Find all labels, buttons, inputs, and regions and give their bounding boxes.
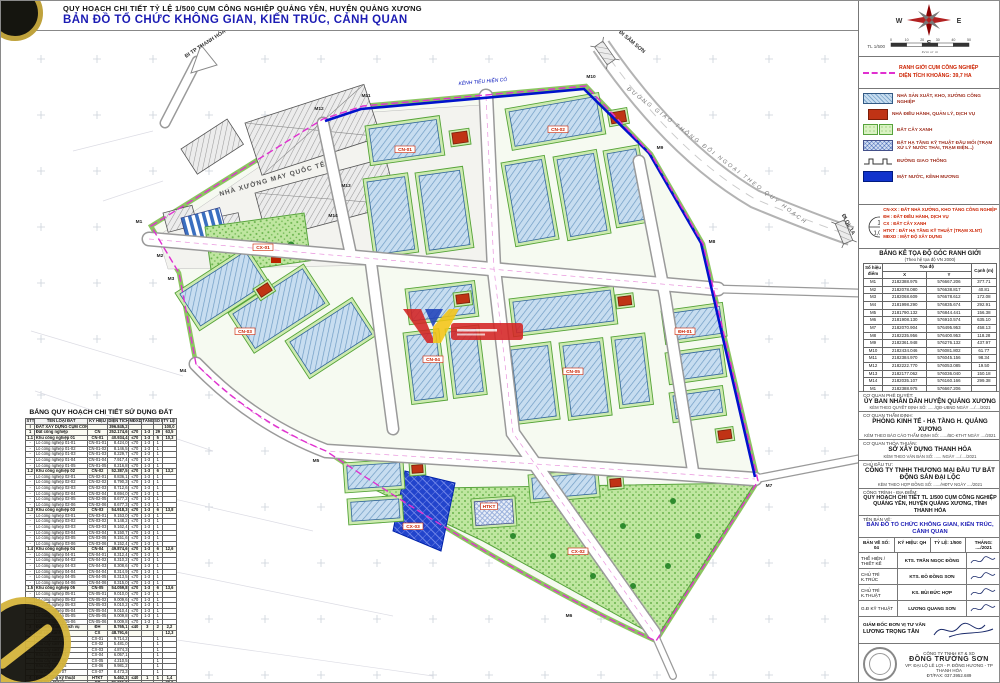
svg-text:20: 20: [920, 38, 924, 42]
lot-code-legend-line: ĐH : ĐẤT ĐIỀU HÀNH, DỊCH VỤ: [883, 214, 997, 221]
drawing-name-section: TÊN BẢN VẼ: BẢN ĐỒ TỔ CHỨC KHÔNG GIAN, K…: [859, 516, 1000, 538]
svg-text:CN-02: CN-02: [551, 127, 565, 133]
legend-item: NHÀ ĐIỀU HÀNH, QUẢN LÝ, DỊCH VỤ: [863, 109, 997, 120]
drawing-meta-row: BẢN VẼ SỐ: 04 KÝ HIỆU: QH TỶ LỆ: 1/500 T…: [859, 538, 1000, 553]
boundary-point-label: M5: [313, 458, 320, 464]
planning-drawing-sheet: QUY HOẠCH CHI TIẾT TỶ LỆ 1/500 CỤM CÔNG …: [0, 0, 1000, 683]
svg-text:Đơn vị: m: Đơn vị: m: [922, 51, 938, 54]
svg-text:W: W: [896, 18, 903, 25]
coordinate-table: Số hiệu điểmTọa độCạnh (m) XY M12182388.…: [863, 263, 997, 393]
lot-tag-label: HTKT: [481, 503, 498, 510]
coordinate-row: M52181790.132576844.441156.38: [864, 309, 997, 317]
project-section: CÔNG TRÌNH - ĐỊA ĐIỂM: QUY HOẠCH CHI TIẾ…: [859, 489, 1000, 516]
legend-item-label: ĐƯỜNG GIAO THÔNG: [897, 158, 947, 163]
consultant-signature: [929, 617, 999, 643]
signature-row: CHỦ TRÌ K.TRÚCKTS. ĐỖ ĐỒNG SƠN: [859, 569, 1000, 585]
sw-dh-swatch: [868, 109, 888, 120]
boundary-legend-box: RANH GIỚI CỤM CÔNG NGHIỆP DIỆN TÍCH KHOẢ…: [859, 57, 1000, 89]
boundary-point-label: M11: [361, 93, 370, 99]
coordinate-row: M82182235.956576400.953118.28: [864, 332, 997, 340]
coordinate-row: M12182388.975576667.206377.71: [864, 279, 997, 287]
svg-text:M6: M6: [566, 613, 573, 619]
sw-mn-swatch: [863, 171, 893, 182]
boundary-point-label: M6: [566, 613, 573, 619]
legend-item-label: ĐẤT HẠ TẦNG KỸ THUẬT ĐẦU MỐI (TRẠM XỬ LÝ…: [897, 140, 997, 151]
svg-text:ĐH-01: ĐH-01: [678, 329, 692, 335]
consultant-row: GIÁM ĐỐC ĐƠN VỊ TƯ VẤN LƯƠNG TRỌNG TÂN: [859, 617, 1000, 644]
company-stamp-icon: [863, 647, 897, 681]
svg-text:CN-01: CN-01: [398, 147, 412, 153]
lot-code-legend-line: HTKT : ĐẤT HẠ TẦNG KỸ THUẬT (TRẠM XLNT): [883, 228, 997, 235]
boundary-dash-swatch: [863, 72, 895, 74]
approval-section: CƠ QUAN PHÊ DUYỆT:ỦY BAN NHÂN DÂN HUYỆN …: [859, 392, 1000, 412]
htkt-lot: [471, 496, 517, 529]
svg-text:50: 50: [967, 38, 971, 42]
approval-section: CHỦ ĐẦU TƯ:CÔNG TY TNHH THƯƠNG MẠI ĐẦU T…: [859, 461, 1000, 489]
coordinate-row: M32182068.609576678.612172.08: [864, 294, 997, 302]
svg-text:M4: M4: [180, 368, 187, 374]
legend-item: MẶT NƯỚC, KÊNH MƯƠNG: [863, 171, 997, 182]
lot-tag-label: CN-03: [235, 328, 255, 335]
coordinate-row: M72182070.904576495.953458.13: [864, 324, 997, 332]
boundary-legend-line2: DIỆN TÍCH KHOẢNG: 39,7 HA: [899, 73, 978, 80]
legend-box: NHÀ SẢN XUẤT, KHO, XƯỞNG CÔNG NGHIỆPNHÀ …: [859, 89, 1000, 205]
svg-text:M2: M2: [157, 253, 164, 259]
coordinate-row: M22182078.080576638.81740.81: [864, 286, 997, 294]
sheet-title-main: BẢN ĐỒ TỔ CHỨC KHÔNG GIAN, KIẾN TRÚC, CẢ…: [63, 14, 858, 26]
coordinate-row: M142182035.107576160.166299.38: [864, 378, 997, 386]
boundary-point-label: M9: [657, 145, 664, 151]
svg-text:M7: M7: [766, 483, 773, 489]
lot-code-legend-line: CX : ĐẤT CÂY XANH: [883, 221, 997, 228]
lot-tag-label: ĐH-01: [675, 328, 695, 335]
svg-text:M14: M14: [328, 213, 338, 219]
svg-text:CX-02: CX-02: [571, 549, 585, 555]
approval-section: CƠ QUAN THẨM ĐỊNH:PHÒNG KINH TẾ - HẠ TẦN…: [859, 412, 1000, 440]
coordinate-row: M112182384.970576045.15698.34: [864, 355, 997, 363]
lot-symbol-legend-box: 1 1,05 SỐ Ô ĐẤT DT (HA) CN-XX : ĐẤT NHÀ …: [859, 205, 1000, 249]
boundary-point-label: M8: [709, 239, 716, 245]
boundary-point-label: M14: [328, 213, 338, 219]
boundary-point-label: M13: [341, 183, 351, 189]
signature-row: THỂ HIỆN / THIẾT KẾKTS. TRẦN NGỌC ĐỒNG: [859, 553, 1000, 569]
boundary-point-label: M7: [766, 483, 773, 489]
legend-item: ĐƯỜNG GIAO THÔNG: [863, 155, 997, 166]
svg-text:0: 0: [890, 38, 892, 42]
signature-table: THỂ HIỆN / THIẾT KẾKTS. TRẦN NGỌC ĐỒNGCH…: [859, 553, 1000, 617]
boundary-point-label: M12: [314, 106, 324, 112]
svg-text:CX-01: CX-01: [256, 245, 270, 251]
coordinate-table-subtitle: (Theo hệ tọa độ VN 2000): [863, 257, 997, 262]
svg-text:30: 30: [936, 38, 940, 42]
sheet-title-small: QUY HOẠCH CHI TIẾT TỶ LỆ 1/500 CỤM CÔNG …: [63, 4, 858, 13]
svg-text:M5: M5: [313, 458, 320, 464]
approval-section: CƠ QUAN THỎA THUẬN:SỞ XÂY DỰNG THANH HÓA…: [859, 440, 1000, 460]
right-panel: W E S TL 1/500 01020304050 Đơn vị: m RAN…: [858, 1, 1000, 683]
sw-cn-swatch: [863, 93, 893, 104]
lot-code-legend-line: MĐXD : MẬT ĐỘ XÂY DỰNG: [883, 234, 997, 241]
road-section-icon: [863, 155, 893, 166]
coordinate-row: M62181908.130576910.574635.10: [864, 317, 997, 325]
svg-text:CN-05: CN-05: [566, 369, 580, 375]
svg-text:CX-03: CX-03: [406, 524, 420, 530]
coordinate-row: M122182222.770576053.08519.50: [864, 362, 997, 370]
boundary-point-label: M4: [180, 368, 187, 374]
svg-text:CN-03: CN-03: [238, 329, 252, 335]
svg-text:M9: M9: [657, 145, 664, 151]
coordinate-row: M42181998.290576835.674292.91: [864, 302, 997, 310]
boundary-point-label: M3: [168, 276, 175, 282]
boundary-point-label: M1: [136, 219, 143, 225]
boundary-point-label: M10: [586, 74, 596, 80]
signature-row: G.Đ KỸ THUẬTLƯƠNG QUANG SƠN: [859, 601, 1000, 617]
legend-item-label: NHÀ SẢN XUẤT, KHO, XƯỞNG CÔNG NGHIỆP: [897, 93, 997, 104]
lot-tag-label: CN-02: [548, 126, 568, 133]
lot-tag-label: CX-02: [568, 548, 588, 555]
scale-bar: TL 1/500 01020304050 Đơn vị: m: [867, 38, 971, 53]
svg-text:M13: M13: [341, 183, 351, 189]
legend-item-label: NHÀ ĐIỀU HÀNH, QUẢN LÝ, DỊCH VỤ: [892, 111, 975, 116]
green-swatch: [863, 124, 893, 135]
compass-rose-icon: W E S TL 1/500 01020304050 Đơn vị: m: [863, 3, 996, 53]
legend-item: NHÀ SẢN XUẤT, KHO, XƯỞNG CÔNG NGHIỆP: [863, 93, 997, 104]
svg-text:M8: M8: [709, 239, 716, 245]
legend-item-label: ĐẤT CÂY XANH: [897, 127, 932, 132]
lot-code-legend-line: CN-XX : ĐẤT NHÀ XƯỞNG, KHO TÀNG CÔNG NGH…: [883, 207, 997, 214]
boundary-legend-line1: RANH GIỚI CỤM CÔNG NGHIỆP: [899, 65, 978, 72]
sheet-header: QUY HOẠCH CHI TIẾT TỶ LỆ 1/500 CỤM CÔNG …: [13, 1, 858, 31]
title-block: CƠ QUAN PHÊ DUYỆT:ỦY BAN NHÂN DÂN HUYỆN …: [859, 392, 1000, 683]
sw-htkt-swatch: [863, 140, 893, 151]
lot-tag-label: CN-01: [395, 146, 415, 153]
coordinate-row: M92182361.948576276.132437.97: [864, 340, 997, 348]
svg-text:1: 1: [877, 221, 880, 227]
svg-text:CN-04: CN-04: [426, 357, 440, 363]
coordinate-table-box: BẢNG KÊ TỌA ĐỘ GÓC RANH GIỚI (Theo hệ tọ…: [859, 249, 1000, 392]
legend-item-label: MẶT NƯỚC, KÊNH MƯƠNG: [897, 174, 959, 179]
lot-tag-label: CX-01: [253, 244, 273, 251]
svg-text:M12: M12: [314, 106, 324, 112]
compass-box: W E S TL 1/500 01020304050 Đơn vị: m: [859, 1, 1000, 57]
svg-text:M1: M1: [136, 219, 143, 225]
svg-text:M10: M10: [586, 74, 596, 80]
svg-text:M3: M3: [168, 276, 175, 282]
signature-row: CHỦ TRÌ K.THUẬTKS. BÙI ĐỨC HỢP: [859, 585, 1000, 601]
coordinate-row: M102182434.046576081.80261.77: [864, 347, 997, 355]
landuse-table-title: BẢNG QUY HOẠCH CHI TIẾT SỬ DỤNG ĐẤT: [25, 409, 177, 416]
svg-text:E: E: [957, 18, 962, 25]
boundary-point-label: M2: [157, 253, 164, 259]
legend-item: ĐẤT HẠ TẦNG KỸ THUẬT ĐẦU MỐI (TRẠM XỬ LÝ…: [863, 140, 997, 151]
svg-text:HTKT: HTKT: [483, 504, 496, 510]
svg-text:1,05: 1,05: [874, 231, 881, 237]
lot-tag-label: CN-04: [423, 356, 443, 363]
company-row: CÔNG TY TNHH KT & XD ĐỒNG TRƯỜNG SƠN VP:…: [859, 644, 1000, 683]
lot-tag-label: CN-05: [563, 368, 583, 375]
coordinate-row: M132182177.062576036.040150.18: [864, 370, 997, 378]
svg-text:40: 40: [951, 38, 955, 42]
svg-text:M11: M11: [361, 93, 370, 99]
lot-tag-label: CX-03: [403, 523, 423, 530]
svg-text:TL 1/500: TL 1/500: [867, 44, 885, 49]
svg-text:10: 10: [905, 38, 909, 42]
legend-item: ĐẤT CÂY XANH: [863, 124, 997, 135]
lot-symbol-diagram: 1 1,05 SỐ Ô ĐẤT DT (HA): [863, 207, 880, 247]
